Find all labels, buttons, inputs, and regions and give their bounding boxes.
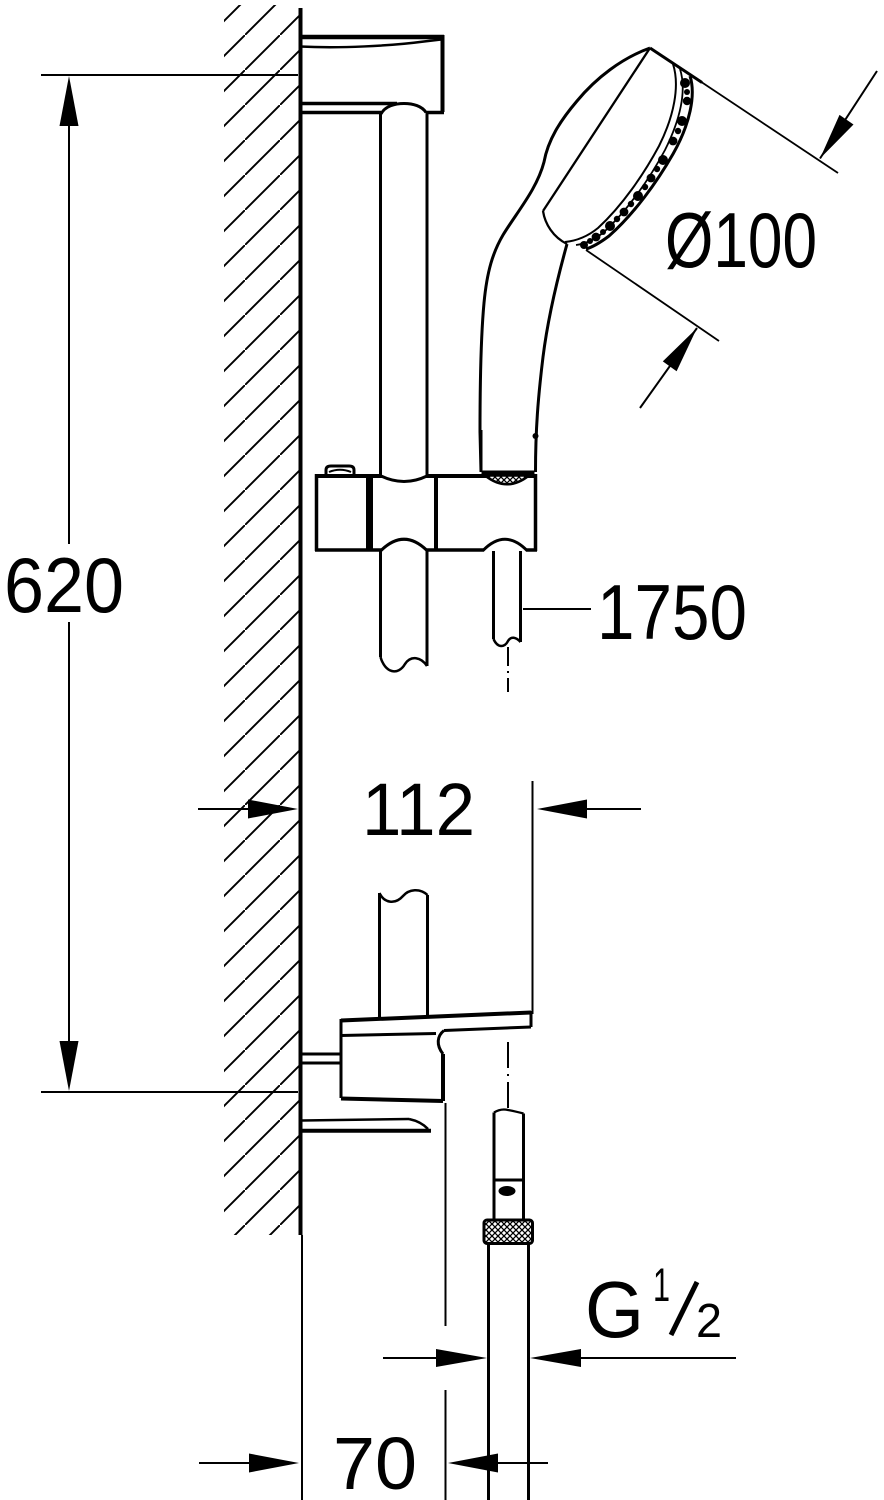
svg-text:112: 112 [362, 768, 475, 851]
svg-text:1750: 1750 [597, 568, 747, 656]
svg-text:620: 620 [4, 541, 124, 629]
svg-text:70: 70 [333, 1422, 417, 1500]
svg-text:Ø100: Ø100 [665, 196, 817, 284]
svg-text:G: G [585, 1265, 644, 1354]
svg-text:1: 1 [653, 1258, 670, 1311]
svg-text:2: 2 [696, 1295, 722, 1348]
